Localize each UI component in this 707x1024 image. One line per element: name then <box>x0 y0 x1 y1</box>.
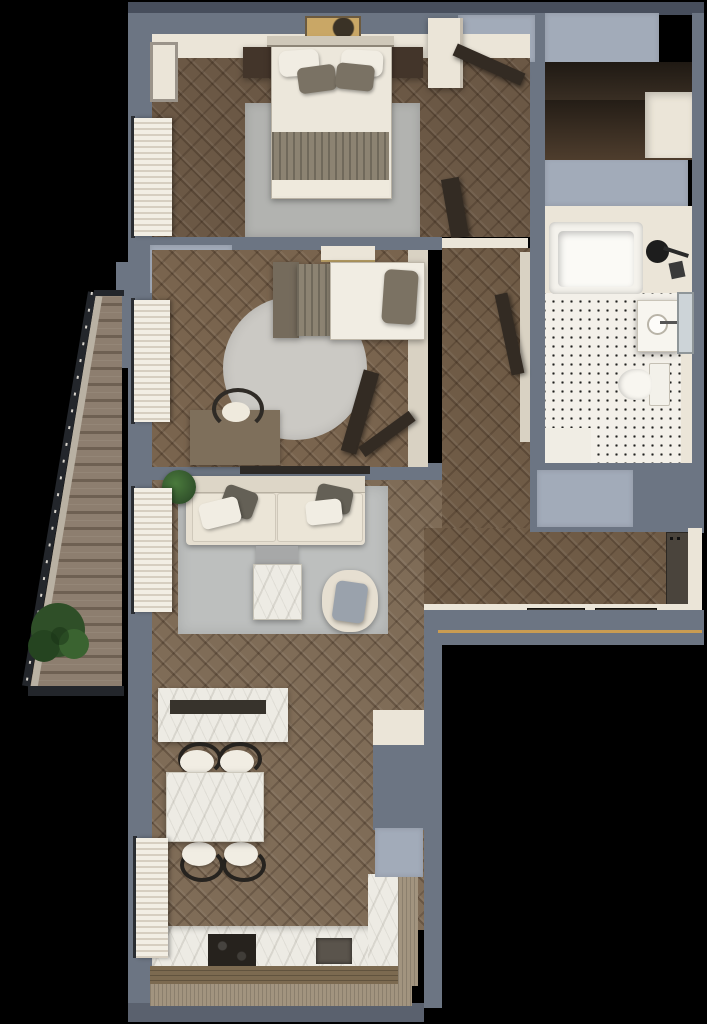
nightstand-right <box>392 47 423 78</box>
kitchen-curtains <box>136 838 168 958</box>
kitchen-sink <box>316 938 352 964</box>
dining-chair-2 <box>220 750 254 774</box>
toilet-bowl <box>618 369 652 400</box>
balcony-south-edge <box>28 686 124 696</box>
coffee-table <box>253 564 302 620</box>
picture-frame <box>150 42 178 102</box>
floor-plan-stage <box>0 0 707 1024</box>
bed-blanket <box>272 132 389 180</box>
bathtub-basin <box>558 231 634 287</box>
kitchen-wood-side <box>398 874 418 986</box>
entry-east-plaster <box>688 528 702 610</box>
kids-wall-shelf <box>321 246 375 262</box>
media-console <box>158 688 288 742</box>
entry-south-wall <box>424 610 704 645</box>
light-strip <box>438 630 702 633</box>
dining-chair-1 <box>180 750 214 774</box>
kitchen-counter-column <box>368 874 400 972</box>
bedroom-curtains <box>134 118 172 236</box>
nightstand-left <box>243 47 271 78</box>
kitchen-tall-cabinet <box>373 710 430 748</box>
sink-basin <box>647 314 668 335</box>
living-wall-ledge <box>240 466 370 474</box>
console-tray <box>170 700 266 714</box>
bathroom-mirror <box>677 292 694 354</box>
door-handle-a <box>670 537 673 540</box>
wall-cap-bath-south <box>537 470 633 527</box>
bed-pillow-taupe-right <box>335 62 376 92</box>
wall-cap-wardrobe-bottom <box>545 158 688 206</box>
bed-foot-sheet <box>272 180 389 196</box>
wall-cap-wardrobe-top <box>545 13 659 68</box>
east-wall <box>692 13 704 533</box>
door-handle-b <box>677 537 680 540</box>
balcony-north-edge <box>94 290 124 296</box>
armchair-cushion <box>331 580 368 624</box>
bed-pillow-taupe-left <box>296 63 337 94</box>
kitchen-wood-front <box>150 984 412 1006</box>
entry-floor <box>424 528 690 608</box>
wall-cap-kitchen-east <box>375 828 423 877</box>
single-bed-headboard <box>273 262 299 338</box>
bath-mat <box>545 428 591 463</box>
cooktop <box>208 934 256 968</box>
dining-chair-4 <box>224 842 258 866</box>
kitchen-wood-sill <box>150 966 414 986</box>
hallway-east-plaster <box>520 252 530 442</box>
single-bed-blanket <box>297 264 331 336</box>
single-bed-pillow <box>381 269 419 325</box>
bed-headboard <box>267 36 394 47</box>
kitchen-east-wall <box>424 645 442 1008</box>
wardrobe-room-corner <box>645 92 692 158</box>
shower-head <box>646 240 669 263</box>
corridor-east-wall <box>530 13 545 470</box>
desk-chair-seat <box>222 402 250 422</box>
balcony <box>0 258 170 708</box>
sink-tap <box>660 321 678 324</box>
sofa-pillow-light-right <box>305 498 343 526</box>
hallway-floor <box>442 248 530 540</box>
kitchen-east-wall-block <box>373 745 430 830</box>
dining-chair-3 <box>182 842 216 866</box>
dining-table <box>166 772 264 842</box>
shower-mixer <box>668 261 685 280</box>
toilet-tank <box>649 363 670 406</box>
